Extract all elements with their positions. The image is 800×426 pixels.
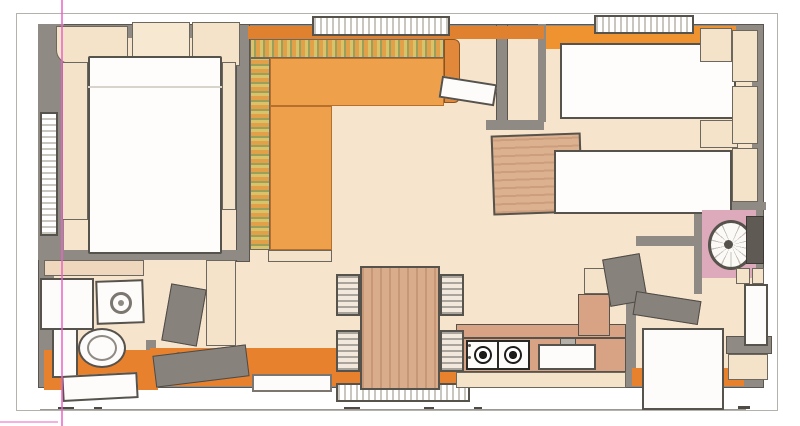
wc-door-stub-wall — [636, 236, 698, 246]
dimension-tick-6 — [738, 406, 750, 409]
sofa-seat-top — [270, 58, 444, 106]
wc-drawer-1 — [736, 268, 750, 284]
shower-tray — [61, 372, 138, 402]
shower-room-cabinet — [728, 354, 768, 380]
window-top-center — [312, 16, 450, 36]
shower-cubicle — [642, 328, 724, 410]
gas-hob-divider — [497, 340, 499, 370]
dining-table — [360, 266, 440, 390]
burner-right — [504, 346, 522, 364]
overhead-cabinet-mid — [132, 22, 190, 58]
sofa-base-bottom — [268, 250, 332, 262]
kitchen-sink — [538, 344, 596, 370]
bed-side-shelf-left — [62, 62, 88, 220]
partition-living-hall — [496, 24, 508, 128]
vanity-ledge — [44, 260, 144, 276]
chair-bottom-right — [440, 330, 464, 372]
wc-drawer-2 — [752, 268, 764, 284]
toilet-cistern — [52, 328, 78, 378]
magenta-marker-line-bottom — [0, 421, 58, 423]
entry-tall-cabinet — [206, 260, 236, 346]
dimension-tick-2 — [94, 407, 102, 409]
chair-top-right — [440, 274, 464, 316]
bed-side-shelf-right — [222, 62, 236, 210]
double-bed-fold-line — [88, 86, 222, 88]
kitchen-counter-front — [456, 372, 626, 388]
dimension-tick-3 — [344, 407, 360, 409]
wardrobe-column-3 — [732, 148, 758, 202]
kitchen-column — [578, 294, 610, 336]
hob-knob-1 — [468, 344, 471, 347]
sofa-backrest-left — [250, 58, 270, 250]
single-bed-bottom — [554, 150, 732, 214]
dimension-line — [40, 409, 746, 410]
washbasin-counter — [40, 278, 94, 330]
dimension-tick-5 — [474, 407, 482, 409]
wc-wall-left — [694, 202, 702, 294]
shower-room-cabinet-door — [744, 284, 768, 346]
wc-toilet-center — [724, 240, 733, 249]
wardrobe-column-1 — [732, 30, 758, 82]
window-top-right — [594, 15, 694, 34]
magenta-marker-line-vertical — [61, 0, 63, 426]
sofa-seat-left — [270, 106, 332, 250]
washer-door-dot — [118, 300, 124, 306]
sink-faucet — [560, 338, 576, 345]
chair-bottom-left — [336, 330, 360, 372]
wardrobe-corner-top — [700, 28, 732, 62]
hob-knob-2 — [468, 356, 471, 359]
entry-sidelight — [252, 374, 332, 392]
floor-plan-page — [0, 0, 800, 426]
wardrobe-column-2 — [732, 86, 758, 144]
partition-hall-ledge — [486, 120, 544, 130]
burner-left — [474, 346, 492, 364]
floor-plan-canvas — [0, 0, 800, 426]
wc-dark-cabinet — [746, 216, 764, 264]
sofa-backrest-top — [250, 39, 444, 58]
toilet-bowl-inner — [87, 335, 117, 361]
dimension-tick-4 — [424, 407, 434, 409]
chair-top-left — [336, 274, 360, 316]
window-left-wall — [40, 112, 58, 236]
